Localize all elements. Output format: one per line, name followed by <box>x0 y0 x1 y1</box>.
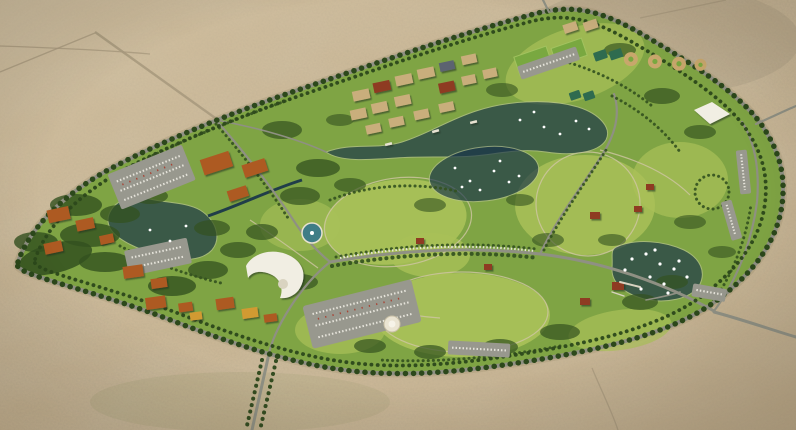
aerial-rendering <box>0 0 796 430</box>
photo-vignette <box>0 0 796 430</box>
masterplan-svg <box>0 0 796 430</box>
